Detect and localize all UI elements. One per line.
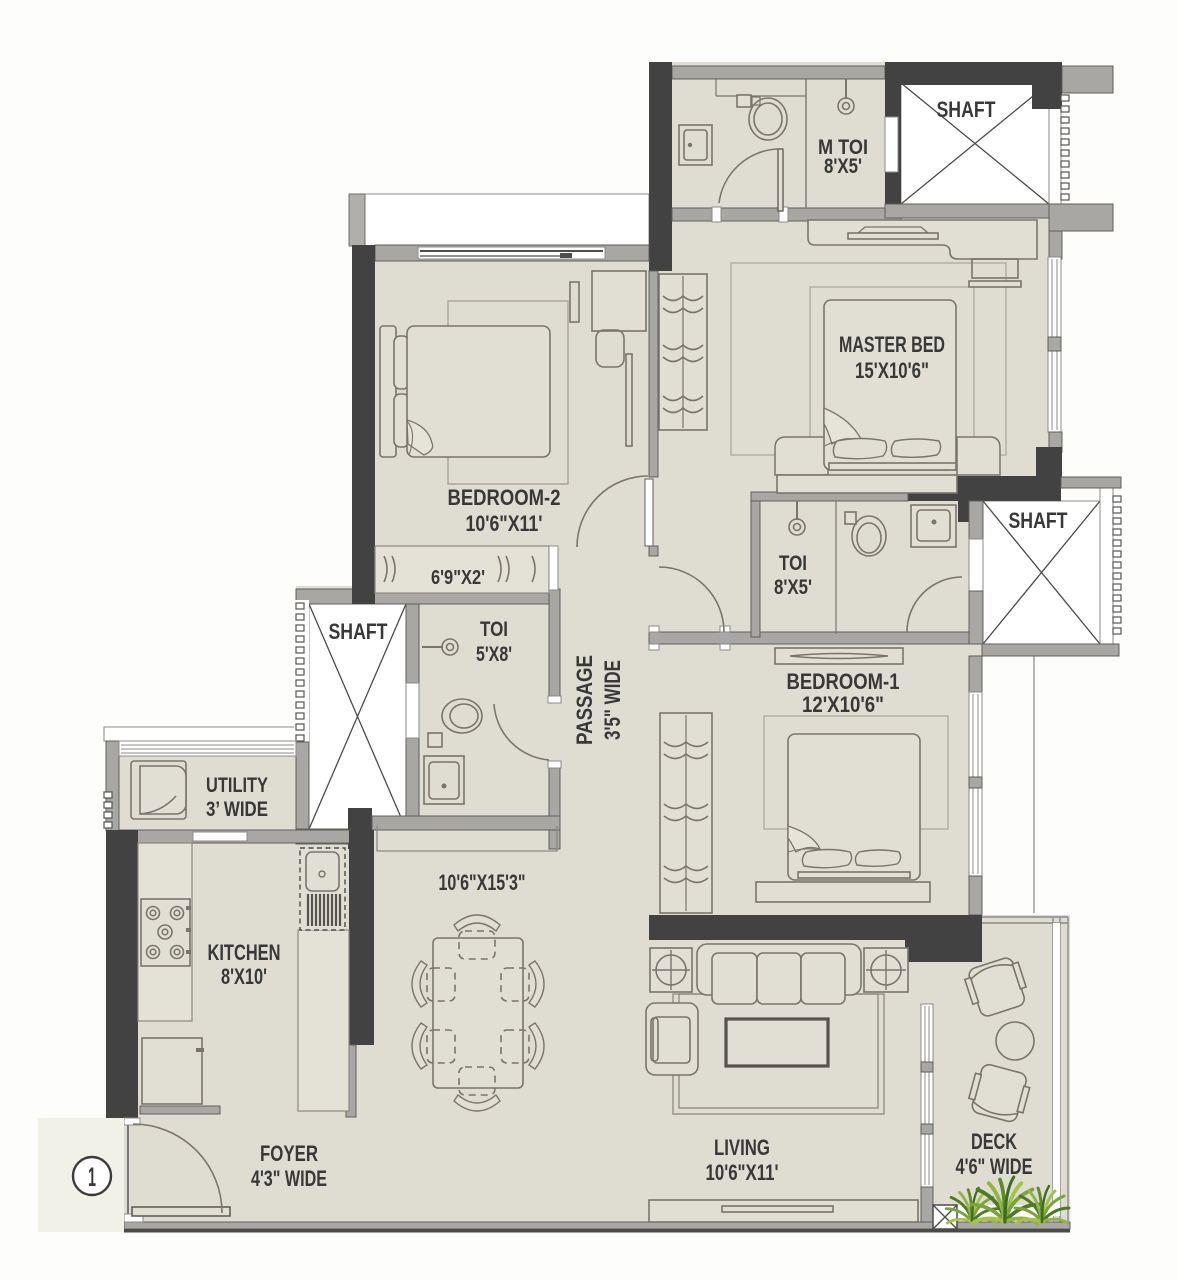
- svg-text:10'6"X11': 10'6"X11': [466, 511, 543, 536]
- svg-text:4'3" WIDE: 4'3" WIDE: [251, 1166, 327, 1191]
- svg-text:KITCHEN: KITCHEN: [208, 940, 281, 965]
- svg-text:5'X8': 5'X8': [476, 643, 512, 666]
- svg-text:12'X10'6": 12'X10'6": [802, 692, 884, 717]
- svg-text:3'5" WIDE: 3'5" WIDE: [600, 660, 625, 740]
- svg-text:BEDROOM-2: BEDROOM-2: [448, 485, 561, 510]
- svg-text:SHAFT: SHAFT: [1009, 508, 1068, 533]
- svg-text:3’ WIDE: 3’ WIDE: [206, 798, 268, 821]
- svg-text:10'6"X15'3": 10'6"X15'3": [439, 870, 526, 895]
- svg-text:1: 1: [88, 1162, 96, 1192]
- svg-text:SHAFT: SHAFT: [329, 619, 388, 644]
- svg-text:MASTER BED: MASTER BED: [839, 332, 945, 357]
- svg-text:6'9"X2': 6'9"X2': [431, 567, 485, 589]
- svg-text:15'X10'6": 15'X10'6": [855, 358, 929, 383]
- svg-text:LIVING: LIVING: [714, 1135, 770, 1160]
- svg-text:8'X5': 8'X5': [774, 576, 812, 599]
- svg-text:SHAFT: SHAFT: [937, 97, 996, 122]
- svg-text:DECK: DECK: [971, 1129, 1017, 1154]
- svg-text:4'6" WIDE: 4'6" WIDE: [956, 1154, 1033, 1179]
- svg-text:UTILITY: UTILITY: [206, 774, 268, 797]
- svg-text:8'X5': 8'X5': [824, 155, 862, 178]
- svg-text:PASSAGE: PASSAGE: [572, 655, 597, 745]
- svg-text:10'6"X11': 10'6"X11': [706, 1160, 779, 1185]
- svg-text:TOI: TOI: [779, 552, 807, 575]
- svg-text:TOI: TOI: [480, 618, 508, 641]
- svg-text:8'X10': 8'X10': [221, 964, 267, 989]
- svg-text:FOYER: FOYER: [260, 1141, 318, 1166]
- svg-text:BEDROOM-1: BEDROOM-1: [787, 669, 900, 694]
